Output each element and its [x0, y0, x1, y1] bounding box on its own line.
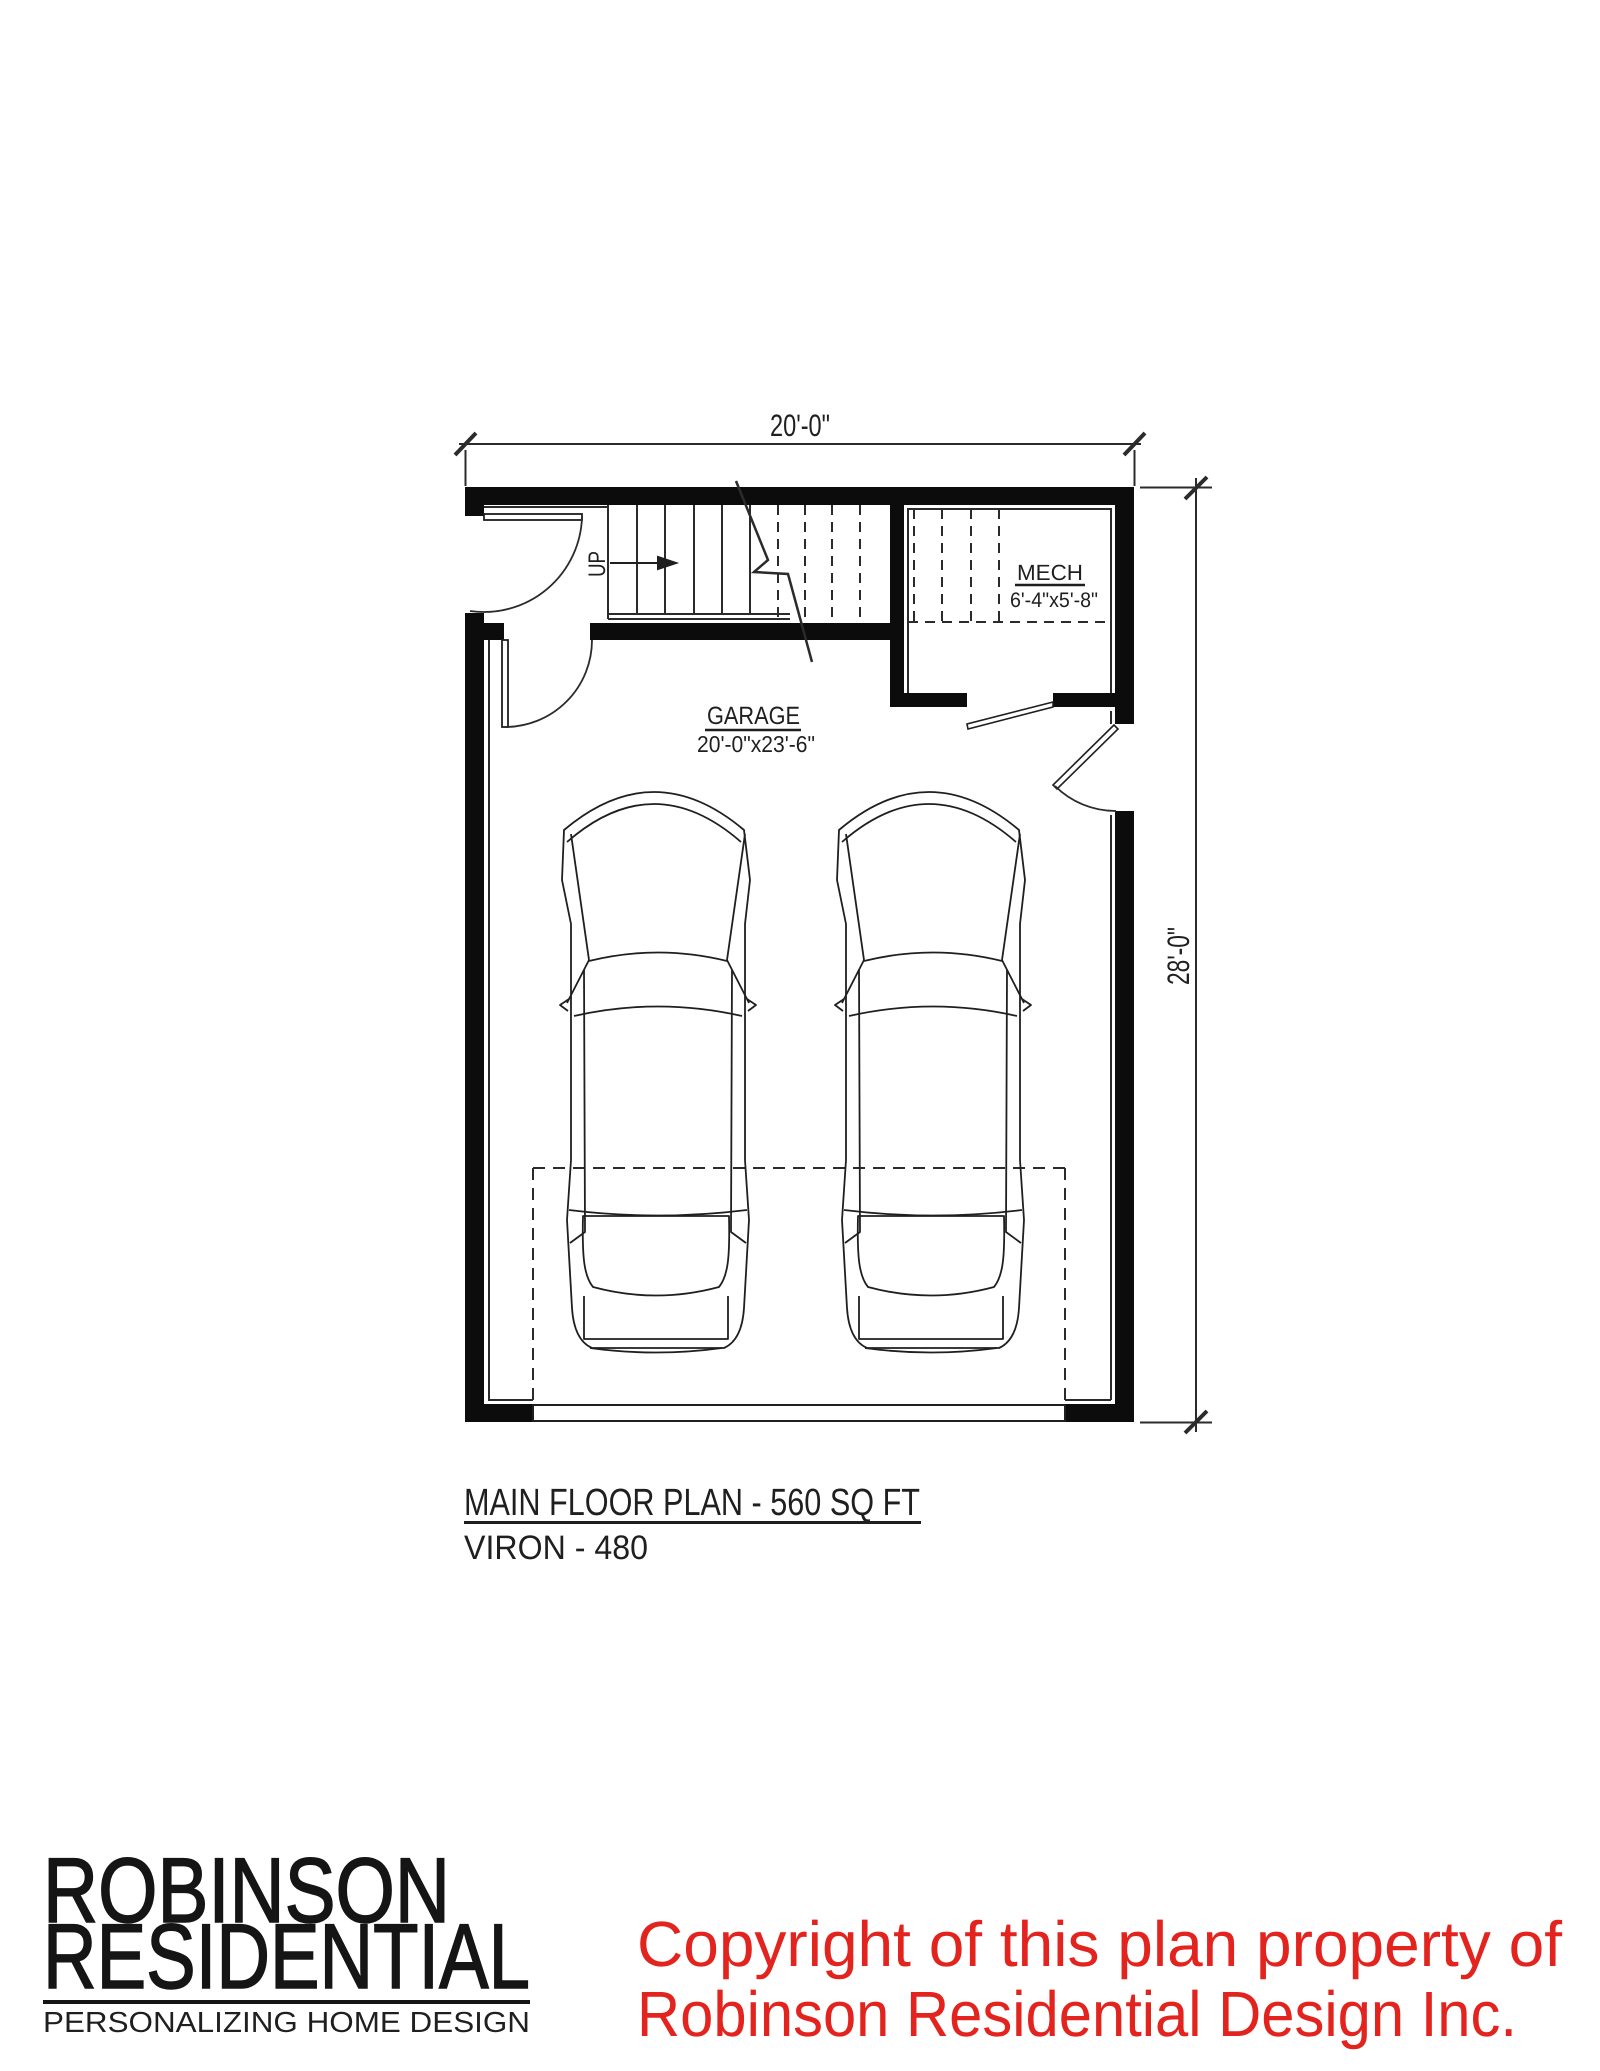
svg-text:MECH: MECH [1017, 560, 1083, 585]
svg-text:20'-0": 20'-0" [770, 408, 830, 443]
svg-text:PERSONALIZING HOME DESIGN: PERSONALIZING HOME DESIGN [43, 2007, 530, 2039]
svg-text:VIRON - 480: VIRON - 480 [464, 1529, 648, 1567]
svg-text:Robinson Residential Design In: Robinson Residential Design Inc. [637, 1978, 1517, 2050]
svg-text:MAIN FLOOR PLAN - 560 SQ FT: MAIN FLOOR PLAN - 560 SQ FT [464, 1482, 920, 1524]
svg-text:UP: UP [584, 551, 611, 577]
svg-text:28'-0": 28'-0" [1161, 927, 1196, 985]
svg-text:RESIDENTIAL: RESIDENTIAL [43, 1906, 530, 2008]
svg-text:6'-4"x5'-8": 6'-4"x5'-8" [1010, 589, 1098, 612]
svg-text:GARAGE: GARAGE [707, 702, 800, 730]
svg-text:Copyright of this plan propert: Copyright of this plan property of [637, 1908, 1562, 1980]
svg-text:20'-0"x23'-6": 20'-0"x23'-6" [697, 731, 815, 757]
